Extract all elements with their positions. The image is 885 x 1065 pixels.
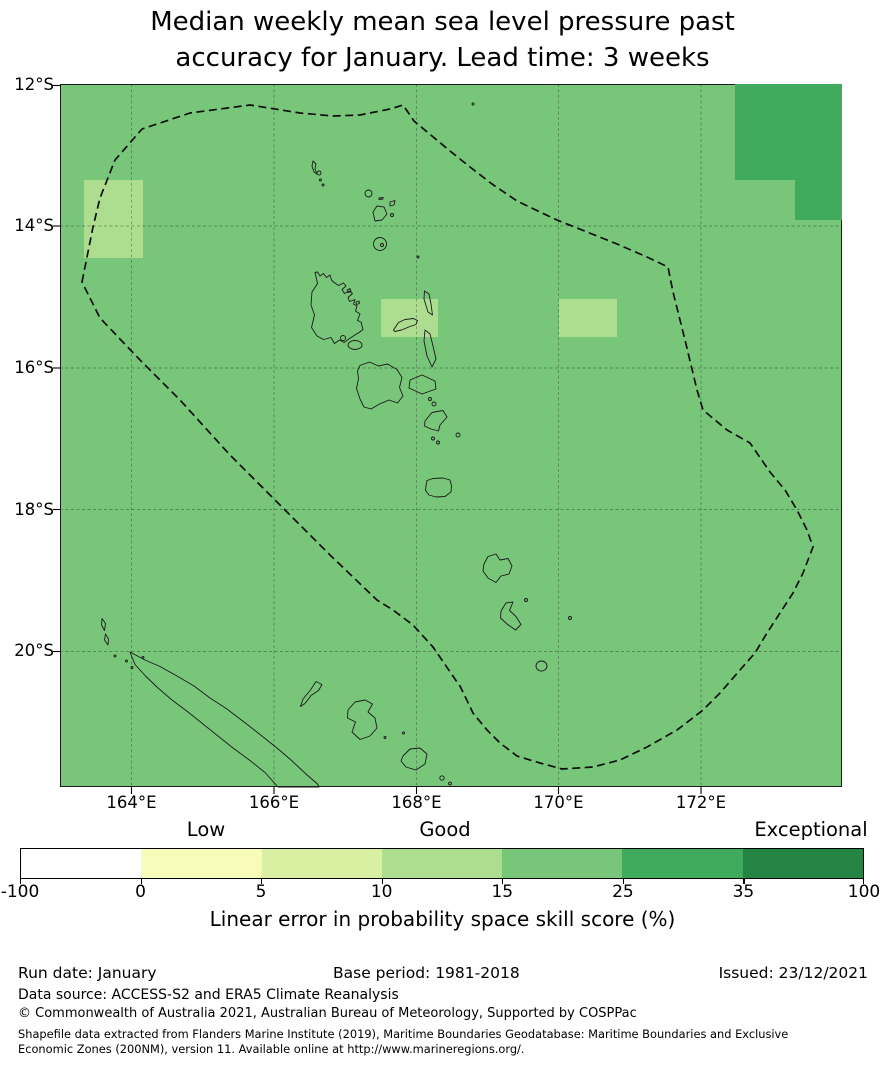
island-mare [401,748,427,770]
colorbar-label-good: Good [419,818,470,842]
island-mota [374,238,387,251]
run-date-text: Run date: January [18,963,157,983]
x-tick-label-166e: 166°E [249,794,299,812]
islet [437,441,440,444]
colorbar-tick-label: -100 [1,883,40,902]
islet [322,184,324,186]
island-epi [425,411,448,432]
copyright-text: © Commonwealth of Australia 2021, Austra… [18,1005,637,1022]
island-torres [312,161,317,174]
island-malakula [357,362,404,409]
issued-date-text: Issued: 23/12/2021 [719,963,868,983]
skill-cell-center [381,299,438,337]
colorbar-segment [743,849,863,878]
data-source-text: Data source: ACCESS-S2 and ERA5 Climate … [18,986,399,1004]
colorbar-label-exceptional: Exceptional [754,818,867,842]
islet [131,667,133,669]
y-tick-label-18s: 18°S [2,501,54,519]
island-ambrym [409,375,436,394]
colorbar-segment [262,849,382,878]
islet [114,655,116,657]
island-belep [105,634,109,645]
colorbar-tick-label: 5 [256,883,267,902]
island-lifou [348,700,378,740]
colorbar-label-low: Low [187,818,225,842]
title-line-1: Median weekly mean sea level pressure pa… [0,4,885,40]
island-lopevi [432,402,436,406]
islet [317,171,321,175]
island-espiritu-santo [311,272,363,344]
island-erromango [483,554,512,583]
coastlines [102,103,572,787]
islet [403,732,405,734]
island-gaua [365,190,372,197]
colorbar-axis-label: Linear error in probability space skill … [0,906,885,932]
island-aore [341,336,346,341]
colorbar-tick-label: 100 [848,883,880,902]
island-emae [456,433,460,437]
figure-canvas: Median weekly mean sea level pressure pa… [0,0,885,1065]
colorbar-segment [21,849,141,878]
title-line-2: accuracy for January. Lead time: 3 weeks [0,40,885,76]
islet [391,214,394,217]
island-pines [440,776,444,780]
islet [390,201,395,207]
islet [449,782,452,785]
island-efate [426,478,452,497]
y-tick-label-16s: 16°S [2,359,54,377]
colorbar-tick-label: 35 [733,883,755,902]
colorbar-tick-label: 15 [491,883,513,902]
island-paama [429,398,432,401]
base-period-text: Base period: 1981-2018 [333,963,520,983]
island-aneityum [536,661,547,671]
page-title: Median weekly mean sea level pressure pa… [0,4,885,76]
islet [384,737,386,739]
y-tick-label-12s: 12°S [2,76,54,94]
lat-lon-grid [60,84,842,787]
colorbar-tick-label: 25 [612,883,634,902]
colorbar-segment [622,849,742,878]
skill-cell-ne-upper [735,84,842,180]
islet [525,599,528,602]
islet [320,179,322,181]
islet [417,256,419,258]
islet [472,103,474,105]
colorbar-tick-label: 0 [135,883,146,902]
skill-cell-west [84,180,143,258]
map-graphics [60,84,842,787]
colorbar [20,848,864,879]
x-tick-label-164e: 164°E [106,794,156,812]
islet [432,437,435,440]
x-tick-label-172e: 172°E [676,794,726,812]
islet [379,198,383,200]
islet [126,660,128,662]
island-malo [348,341,362,350]
island-grande-terre [130,652,319,787]
colorbar-segment [141,849,261,878]
y-tick-label-20s: 20°S [2,642,54,660]
skill-cell-ne-lower [795,180,842,220]
islet [569,617,572,620]
axis-ticks [53,86,701,795]
map-panel [60,84,842,787]
island-tanna [501,602,522,630]
colorbar-segment [382,849,502,878]
shapefile-attribution-line-1: Shapefile data extracted from Flanders M… [18,1027,788,1042]
islet [356,301,360,305]
colorbar-segment [502,849,622,878]
island-ouvea [301,682,323,707]
shapefile-attribution-line-2: Economic Zones (200NM), version 11. Avai… [18,1042,525,1057]
islet [381,244,384,247]
skill-cells [84,84,842,337]
island-vanua-lava [373,206,387,221]
x-tick-label-170e: 170°E [533,794,583,812]
x-tick-label-168e: 168°E [391,794,441,812]
islet [347,289,351,293]
eez-boundary [82,105,813,769]
colorbar-tick-label: 10 [371,883,393,902]
island-belep [102,619,106,631]
y-tick-label-14s: 14°S [2,217,54,235]
skill-cell-east [559,299,617,337]
